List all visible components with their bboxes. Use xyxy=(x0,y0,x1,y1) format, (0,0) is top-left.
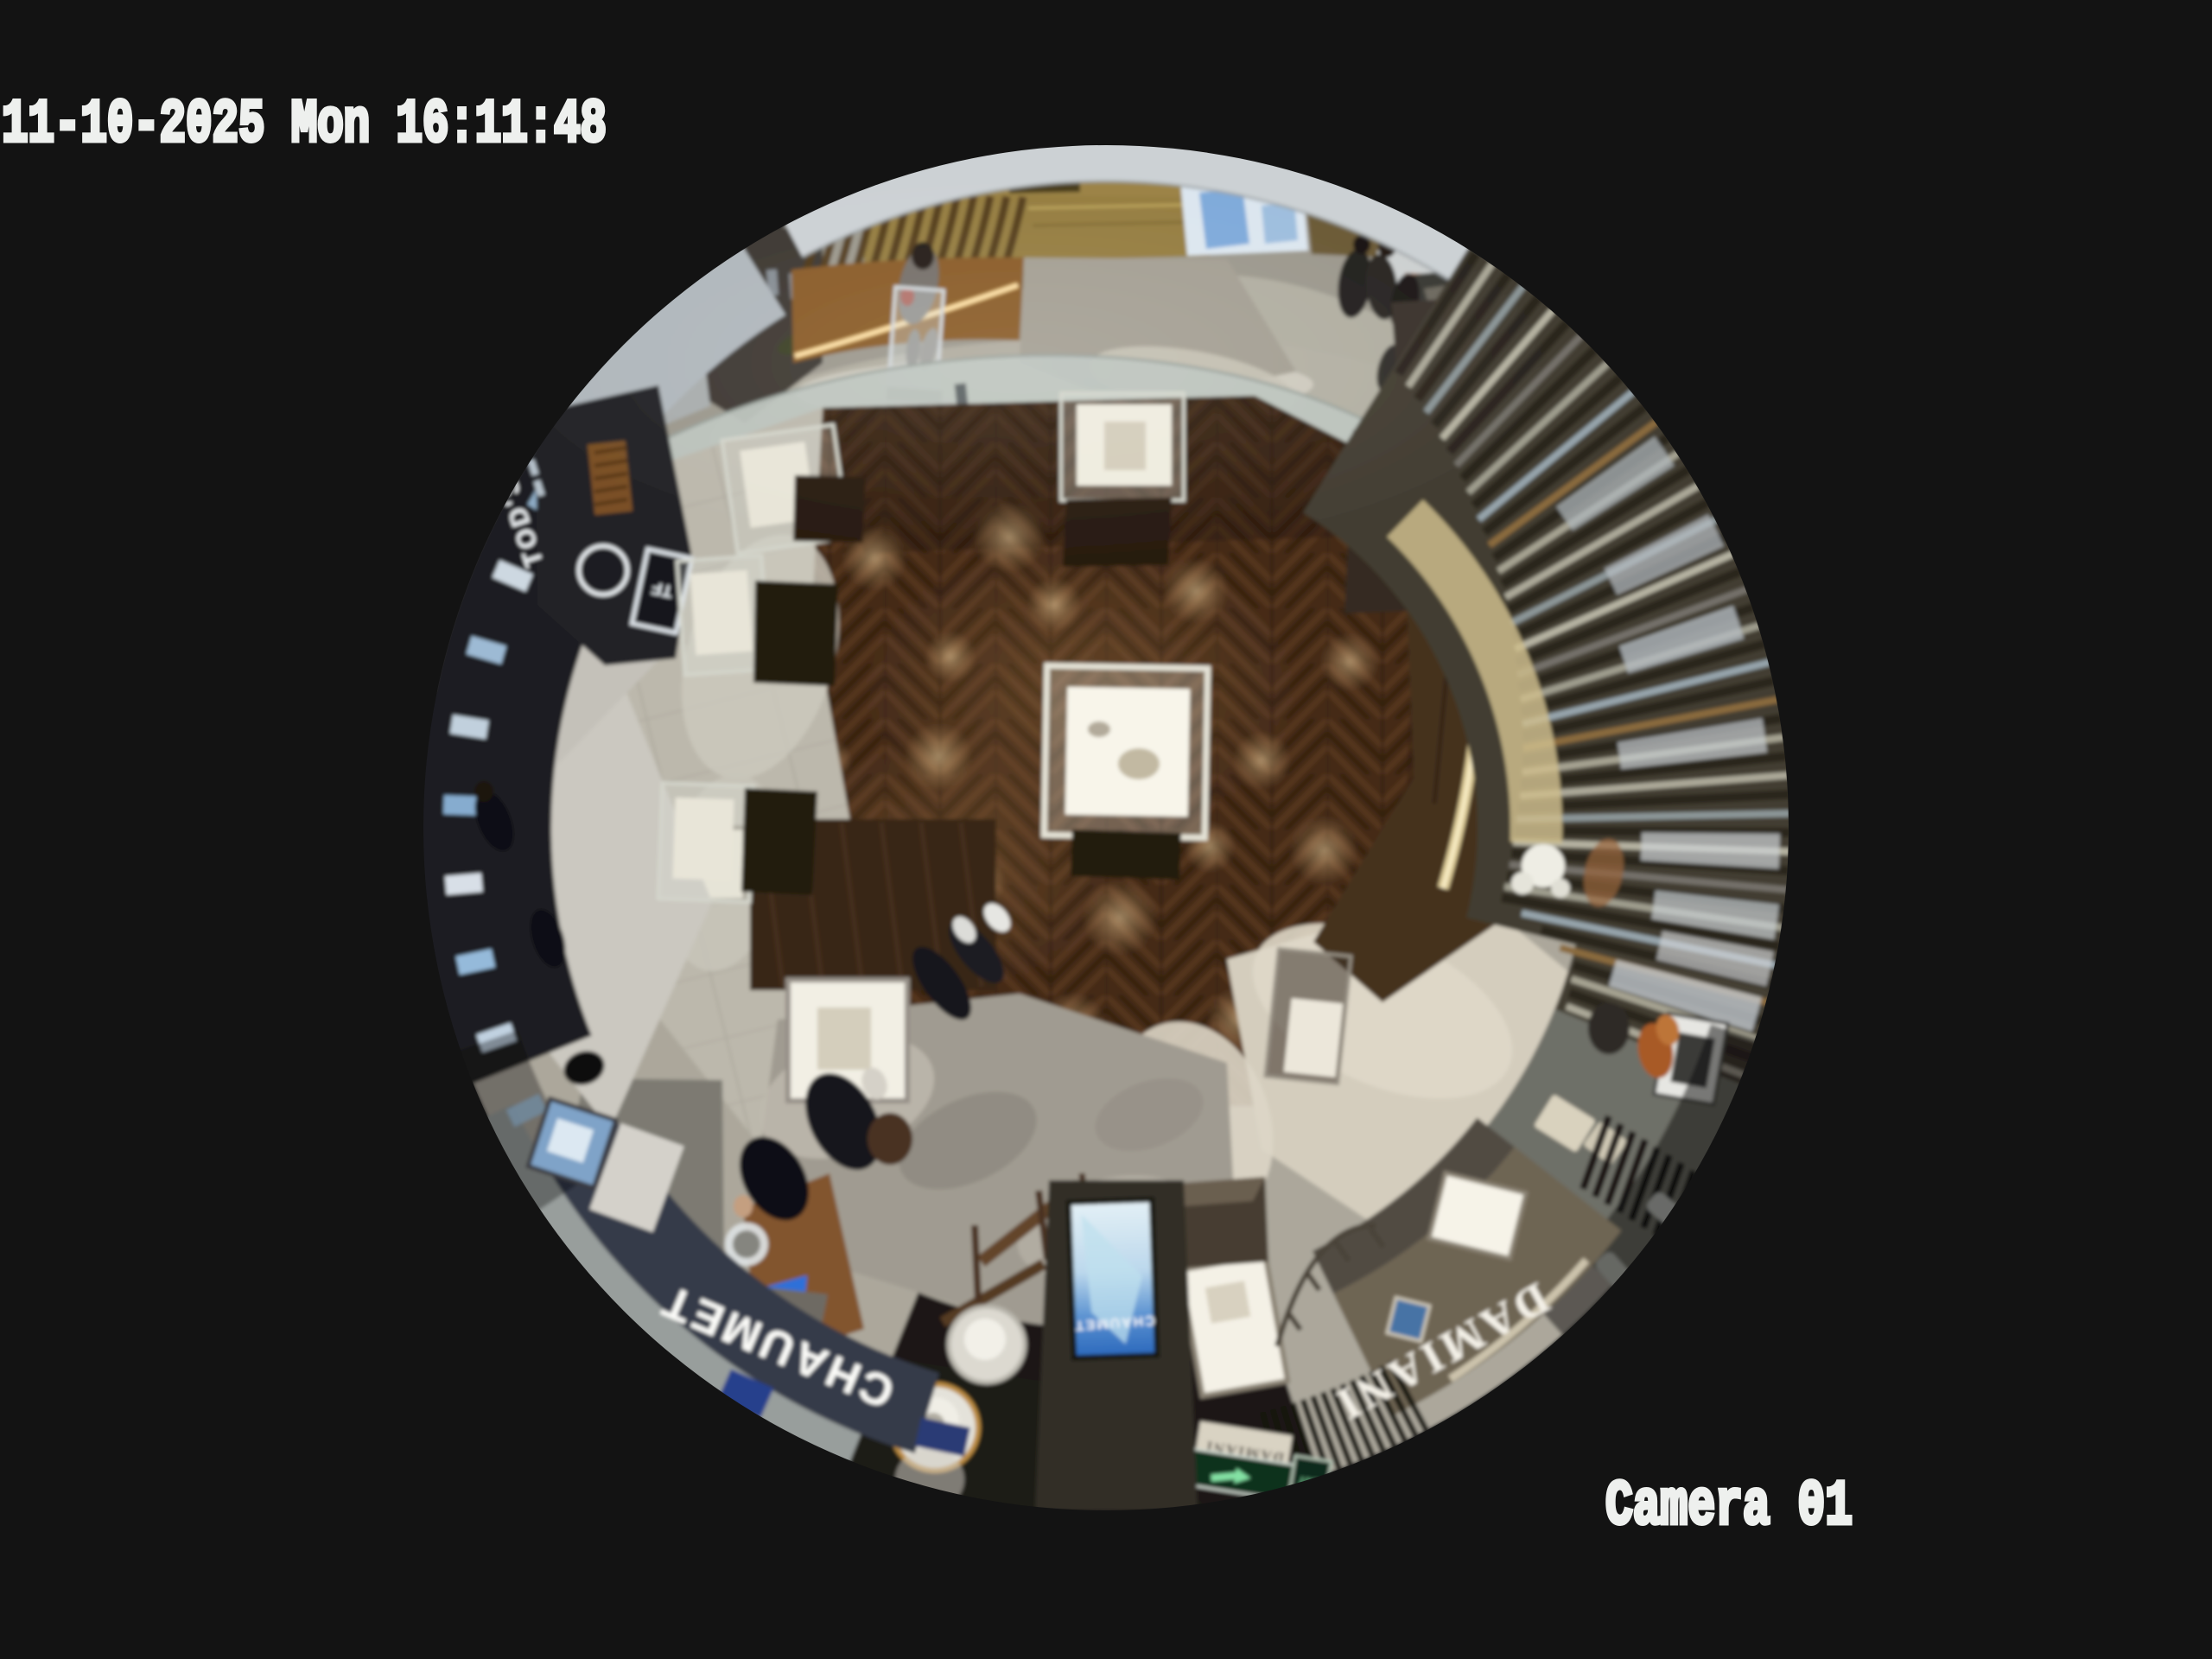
svg-text:Camera 01: Camera 01 xyxy=(1605,1471,1853,1542)
svg-text:11-10-2025 Mon 16:11:48: 11-10-2025 Mon 16:11:48 xyxy=(2,92,607,160)
